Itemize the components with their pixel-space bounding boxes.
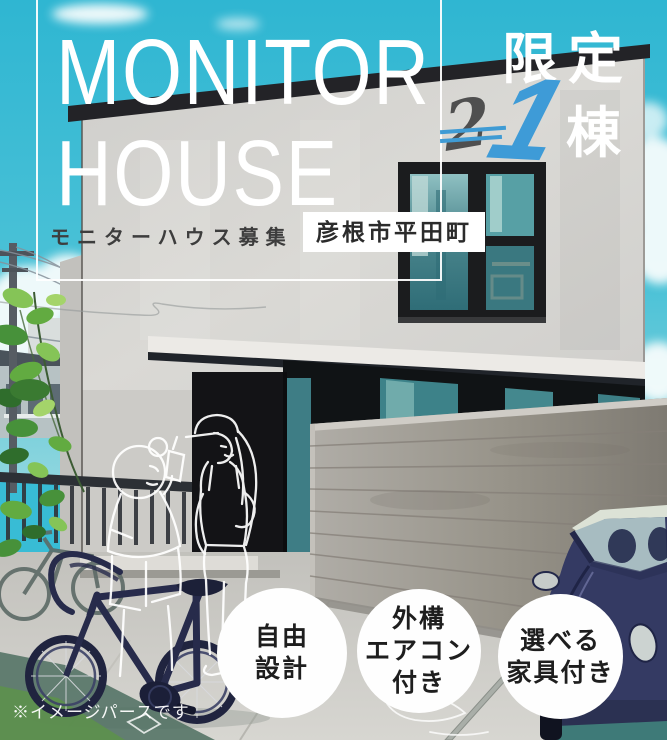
poster-root: MONITOR HOUSE モニターハウス募集 彦根市平田町 限定 2 1 棟 … [0,0,667,740]
feature-badge-free-design: 自由 設計 [217,588,347,718]
feature-badge-furniture: 選べる 家具付き [498,594,623,719]
feature-line: 選べる [520,625,601,657]
limited-old-count: 2 [442,90,491,158]
feature-line: 自由 [255,621,309,653]
feature-badge-exterior-ac: 外構 エアコン 付き [357,589,481,713]
limited-unit: 棟 [566,88,621,168]
poster-subtitle: モニターハウス募集 [50,221,293,250]
feature-line: 設計 [255,653,309,685]
feature-line: エアコン [365,635,473,667]
feature-line: 家具付き [506,657,614,689]
car-mirror [533,572,559,590]
door-sidelight [287,378,311,562]
feature-line: 外構 [392,603,446,635]
feature-line: 付き [392,667,446,699]
disclaimer-note: ※イメージパースです [12,698,190,723]
poster-title-line2: HOUSE [56,123,431,224]
poster-title: MONITOR HOUSE [56,22,431,224]
poster-title-line1: MONITOR [56,22,431,123]
location-badge: 彦根市平田町 [303,212,485,252]
